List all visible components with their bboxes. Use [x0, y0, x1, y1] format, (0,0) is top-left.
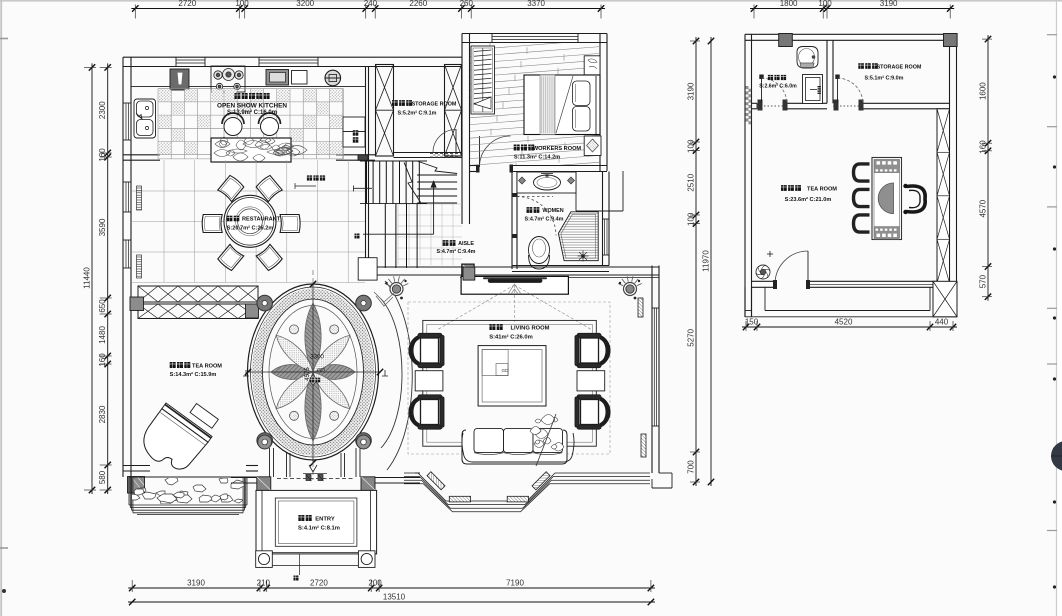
svg-text:3190: 3190: [880, 0, 898, 8]
svg-text:650: 650: [98, 299, 107, 313]
svg-text:2720: 2720: [310, 579, 328, 588]
svg-text:160: 160: [979, 140, 988, 154]
svg-text:GD: GD: [317, 368, 325, 374]
svg-text:1600: 1600: [978, 82, 987, 100]
svg-text:200: 200: [368, 579, 382, 588]
svg-text:3190: 3190: [187, 579, 205, 588]
svg-text:2720: 2720: [178, 0, 196, 8]
svg-text:2260: 2260: [409, 0, 427, 8]
svg-text:S:5.1m² C:9.0m: S:5.1m² C:9.0m: [865, 76, 904, 82]
svg-text:150: 150: [745, 318, 759, 327]
svg-text:11970: 11970: [702, 250, 711, 272]
svg-text:100: 100: [235, 0, 249, 8]
svg-text:3200: 3200: [296, 0, 314, 8]
svg-text:4570: 4570: [979, 199, 988, 217]
svg-text:100: 100: [687, 212, 696, 226]
svg-text:3370: 3370: [527, 0, 545, 8]
svg-text:2300: 2300: [98, 101, 107, 119]
svg-text:570: 570: [979, 274, 988, 288]
svg-text:2830: 2830: [98, 405, 107, 423]
svg-text:3190: 3190: [687, 82, 696, 100]
svg-text:AISLE: AISLE: [458, 241, 474, 247]
svg-text:210: 210: [257, 579, 271, 588]
svg-text:1800: 1800: [780, 0, 798, 8]
svg-text:S:4.1m² C:8.1m: S:4.1m² C:8.1m: [298, 525, 340, 532]
svg-text:S:11.3m² C:14.2m: S:11.3m² C:14.2m: [514, 154, 560, 161]
svg-text:S:4.7m² C:9.4m: S:4.7m² C:9.4m: [437, 249, 476, 255]
svg-text:S:20.7m² C:26.2m: S:20.7m² C:26.2m: [227, 225, 274, 232]
svg-text:440: 440: [935, 318, 949, 327]
svg-text:240: 240: [364, 0, 378, 8]
svg-text:4520: 4520: [835, 318, 853, 327]
svg-text:260: 260: [460, 0, 474, 8]
svg-text:3300: 3300: [310, 354, 324, 361]
svg-text:LIVING ROOM: LIVING ROOM: [511, 326, 550, 332]
svg-text:S:13.9m² C:16.0m: S:13.9m² C:16.0m: [227, 109, 277, 116]
svg-text:WOMEN: WOMEN: [542, 208, 563, 214]
svg-text:100: 100: [818, 0, 832, 8]
svg-text:2510: 2510: [687, 173, 696, 191]
svg-text:STORAGE ROOM: STORAGE ROOM: [412, 102, 457, 108]
svg-text:WORKERS ROOM: WORKERS ROOM: [533, 146, 582, 152]
svg-text:GD: GD: [502, 368, 510, 373]
svg-text:160: 160: [98, 353, 107, 367]
svg-text:S:41m² C:26.0m: S:41m² C:26.0m: [489, 334, 533, 341]
svg-text:STORAGE ROOM: STORAGE ROOM: [877, 65, 922, 71]
svg-text:S:5.2m² C:9.1m: S:5.2m² C:9.1m: [398, 111, 437, 117]
svg-text:ENTRY: ENTRY: [315, 517, 335, 523]
svg-text:580: 580: [98, 470, 107, 484]
svg-text:OPEN SHOW KITCHEN: OPEN SHOW KITCHEN: [217, 103, 287, 110]
svg-text:700: 700: [687, 460, 696, 474]
svg-text:100: 100: [686, 139, 695, 153]
svg-text:1480: 1480: [98, 326, 107, 344]
svg-text:S:4.7m² C:9.4m: S:4.7m² C:9.4m: [525, 217, 564, 223]
svg-text:TEA ROOM: TEA ROOM: [807, 187, 837, 193]
svg-text:160: 160: [98, 148, 107, 162]
svg-text:S:23.6m² C:21.0m: S:23.6m² C:21.0m: [785, 196, 832, 203]
svg-text:5270: 5270: [687, 328, 696, 346]
svg-text:TEA ROOM: TEA ROOM: [192, 364, 222, 370]
svg-text:7190: 7190: [506, 579, 524, 588]
svg-text:11440: 11440: [83, 267, 92, 289]
svg-text:RESTAURANT: RESTAURANT: [242, 217, 281, 223]
svg-text:13510: 13510: [383, 593, 406, 602]
svg-text:S:14.3m² C:15.9m: S:14.3m² C:15.9m: [170, 371, 217, 378]
svg-text:3590: 3590: [98, 218, 107, 236]
svg-text:S:2.6m² C:6.0m: S:2.6m² C:6.0m: [759, 84, 797, 90]
